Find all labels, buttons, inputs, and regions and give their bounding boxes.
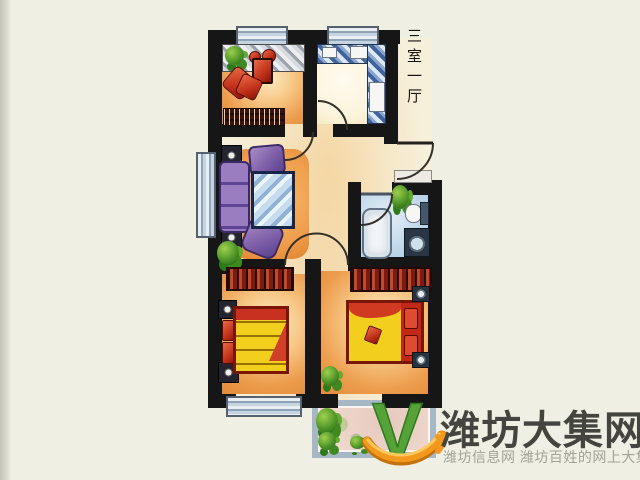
v-ribbon-logo-icon: V <box>362 390 448 478</box>
watermark-tagline: 潍坊信息网 潍坊百姓的网上大集 <box>443 447 640 467</box>
floorplan-image: 三室一厅 V 潍坊大集网 潍坊信息网 潍坊百姓的网上大集 <box>0 0 640 480</box>
edge-vignette <box>0 0 12 480</box>
plan-title: 三室一厅 <box>403 28 424 108</box>
